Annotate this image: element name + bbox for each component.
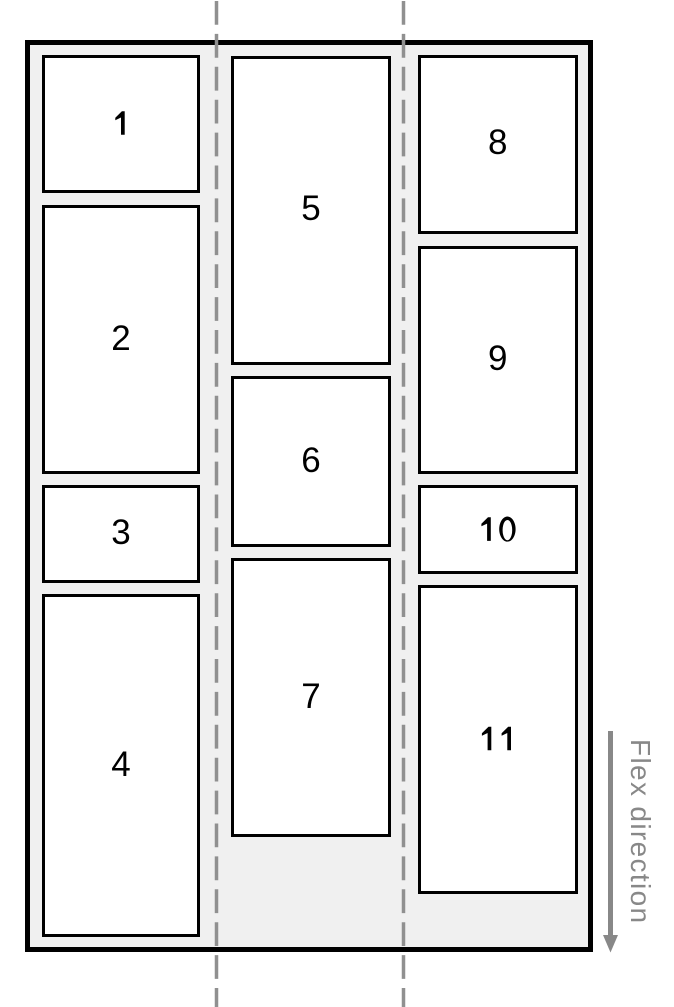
svg-text:Flex direction: Flex direction xyxy=(625,739,656,924)
